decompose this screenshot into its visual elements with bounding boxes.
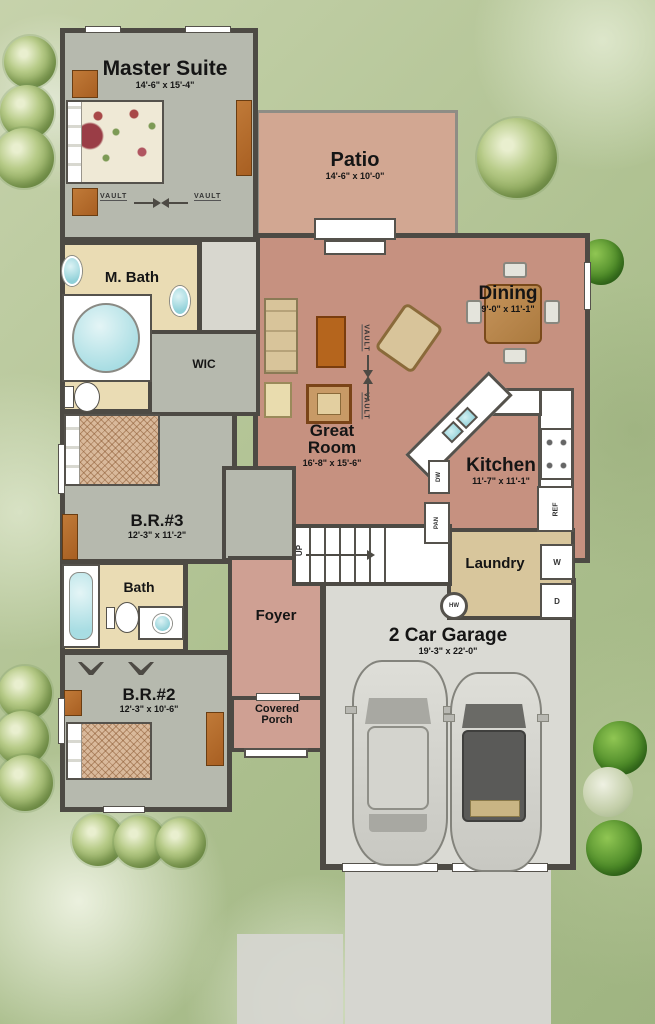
room-name: Bath xyxy=(123,579,154,595)
vault-arrow-icon xyxy=(168,202,188,204)
bed-pillows xyxy=(66,416,80,484)
water-heater-label: HW xyxy=(449,603,459,609)
room-label-covered-porch: Covered Porch xyxy=(246,704,308,726)
room-label-master-bath: M. Bath xyxy=(92,270,172,285)
window-marker xyxy=(58,698,65,744)
vault-annotation: VAULT xyxy=(362,324,370,351)
bed-pillows xyxy=(68,724,82,778)
tub-basin xyxy=(72,303,140,373)
master-bed xyxy=(66,100,164,184)
tree-icon xyxy=(583,767,633,817)
toilet-tank xyxy=(64,386,74,408)
room-label-foyer: Foyer xyxy=(240,608,312,623)
toilet xyxy=(64,382,102,412)
car-mirror xyxy=(345,706,357,714)
room-name: Dining xyxy=(478,283,537,304)
patio-steps xyxy=(314,218,396,240)
car-roof xyxy=(367,726,429,810)
room-dims: 11'-7" x 11'-1" xyxy=(442,477,560,486)
driveway xyxy=(345,866,551,1024)
tree-icon xyxy=(0,128,54,188)
porch-steps xyxy=(244,748,308,758)
dining-chair xyxy=(503,262,527,278)
room-name: Foyer xyxy=(256,607,297,624)
room-label-great-room: Great Room 16'-8" x 15'-6" xyxy=(294,422,370,468)
tree-icon xyxy=(0,755,53,811)
window-marker xyxy=(85,26,121,33)
room-label-laundry: Laundry xyxy=(452,556,538,571)
cabinet xyxy=(64,690,82,716)
wic-room xyxy=(148,330,260,416)
room-dims: 19'-3" x 22'-0" xyxy=(358,647,538,656)
room-dims: 14'-6" x 10'-0" xyxy=(300,172,410,181)
car xyxy=(450,672,542,872)
toilet-bowl xyxy=(115,602,139,633)
room-label-bath: Bath xyxy=(106,580,172,594)
room-name: B.R.#2 xyxy=(123,685,176,704)
refrigerator-label: REF xyxy=(552,502,559,516)
car-mirror xyxy=(443,714,455,722)
walkway xyxy=(237,934,343,1024)
nightstand xyxy=(72,188,98,216)
tree-icon xyxy=(477,118,557,198)
room-dims: 9'-0" x 11'-1" xyxy=(455,305,561,314)
floorplan-canvas: REF DW PAN W D HW VAULT VAULT VAULT VAUL xyxy=(0,0,655,1024)
patio-steps xyxy=(324,240,386,255)
media-console xyxy=(306,384,352,424)
room-dims: 14'-6" x 15'-4" xyxy=(70,81,260,90)
room-name: 2 Car Garage xyxy=(389,625,507,646)
room-name: Master Suite xyxy=(103,57,228,80)
washer-label: W xyxy=(553,558,561,567)
bedroom3-bed xyxy=(64,414,160,486)
car-windshield xyxy=(365,698,431,724)
tree-icon xyxy=(586,820,642,876)
room-label-master-suite: Master Suite 14'-6" x 15'-4" xyxy=(70,58,260,91)
water-heater: HW xyxy=(440,592,468,620)
bedroom-hall xyxy=(222,466,296,562)
bathroom-sink xyxy=(62,256,82,286)
dresser xyxy=(236,100,252,176)
stairs-up-label: UP xyxy=(295,545,304,556)
dryer-label: D xyxy=(554,597,560,606)
tree-icon xyxy=(156,818,206,868)
dresser xyxy=(206,712,224,766)
bathroom-sink xyxy=(170,286,190,316)
tree-icon xyxy=(4,36,56,88)
front-door-opening xyxy=(256,693,300,701)
bath-vanity xyxy=(138,606,184,640)
tub-basin xyxy=(69,572,93,640)
room-name: Patio xyxy=(331,149,380,171)
room-dims: 16'-8" x 15'-6" xyxy=(294,459,370,468)
room-label-garage: 2 Car Garage 19'-3" x 22'-0" xyxy=(358,626,538,657)
room-dims: 12'-3" x 11'-2" xyxy=(92,531,222,540)
console-inset xyxy=(317,393,341,415)
window-marker xyxy=(185,26,231,33)
room-dims: 12'-3" x 10'-6" xyxy=(94,705,204,714)
refrigerator: REF xyxy=(537,486,574,532)
dryer: D xyxy=(540,583,574,619)
car-mirror xyxy=(537,714,549,722)
vault-arrow-icon xyxy=(367,355,369,371)
master-hall xyxy=(198,238,260,334)
room-label-dining: Dining 9'-0" x 11'-1" xyxy=(455,284,561,315)
car xyxy=(352,660,448,866)
car-rear-shelf xyxy=(470,800,520,817)
room-name: B.R.#3 xyxy=(131,511,184,530)
room-name: WIC xyxy=(192,357,215,371)
room-name: Covered Porch xyxy=(255,703,299,726)
stairs-up-arrow-icon xyxy=(306,554,368,556)
window-marker xyxy=(103,806,145,813)
dining-chair xyxy=(503,348,527,364)
vault-arrow-icon xyxy=(134,202,154,204)
pantry-label: PAN xyxy=(434,517,440,529)
bed-floral-quilt xyxy=(82,102,162,182)
room-name: M. Bath xyxy=(105,269,159,286)
bathroom-sink xyxy=(153,614,172,633)
vault-arrow-icon xyxy=(367,383,369,399)
pantry: PAN xyxy=(424,502,450,544)
toilet-tank xyxy=(106,607,115,629)
vault-annotation: VAULT xyxy=(194,193,221,201)
room-label-patio: Patio 14'-6" x 10'-0" xyxy=(300,150,410,182)
room-label-bedroom2: B.R.#2 12'-3" x 10'-6" xyxy=(94,686,204,715)
vault-annotation: VAULT xyxy=(100,193,127,201)
dresser xyxy=(62,514,78,560)
bed-pillows xyxy=(68,102,82,182)
room-name: Great Room xyxy=(308,421,356,457)
master-tub xyxy=(62,294,152,382)
car-windshield xyxy=(462,704,526,728)
room-name: Kitchen xyxy=(466,455,536,476)
washer: W xyxy=(540,544,574,580)
window-marker xyxy=(584,262,591,310)
room-label-wic: WIC xyxy=(178,358,230,370)
coffee-table xyxy=(316,316,346,368)
bedroom2-bed xyxy=(66,722,152,780)
room-name: Laundry xyxy=(465,555,524,572)
bathtub xyxy=(62,564,100,648)
side-table xyxy=(264,382,292,418)
room-label-kitchen: Kitchen 11'-7" x 11'-1" xyxy=(442,456,560,487)
toilet-bowl xyxy=(74,382,100,412)
toilet xyxy=(106,602,140,634)
room-label-bedroom3: B.R.#3 12'-3" x 11'-2" xyxy=(92,512,222,541)
sofa xyxy=(264,298,298,374)
window-marker xyxy=(58,444,65,494)
car-rear-window xyxy=(369,814,427,832)
